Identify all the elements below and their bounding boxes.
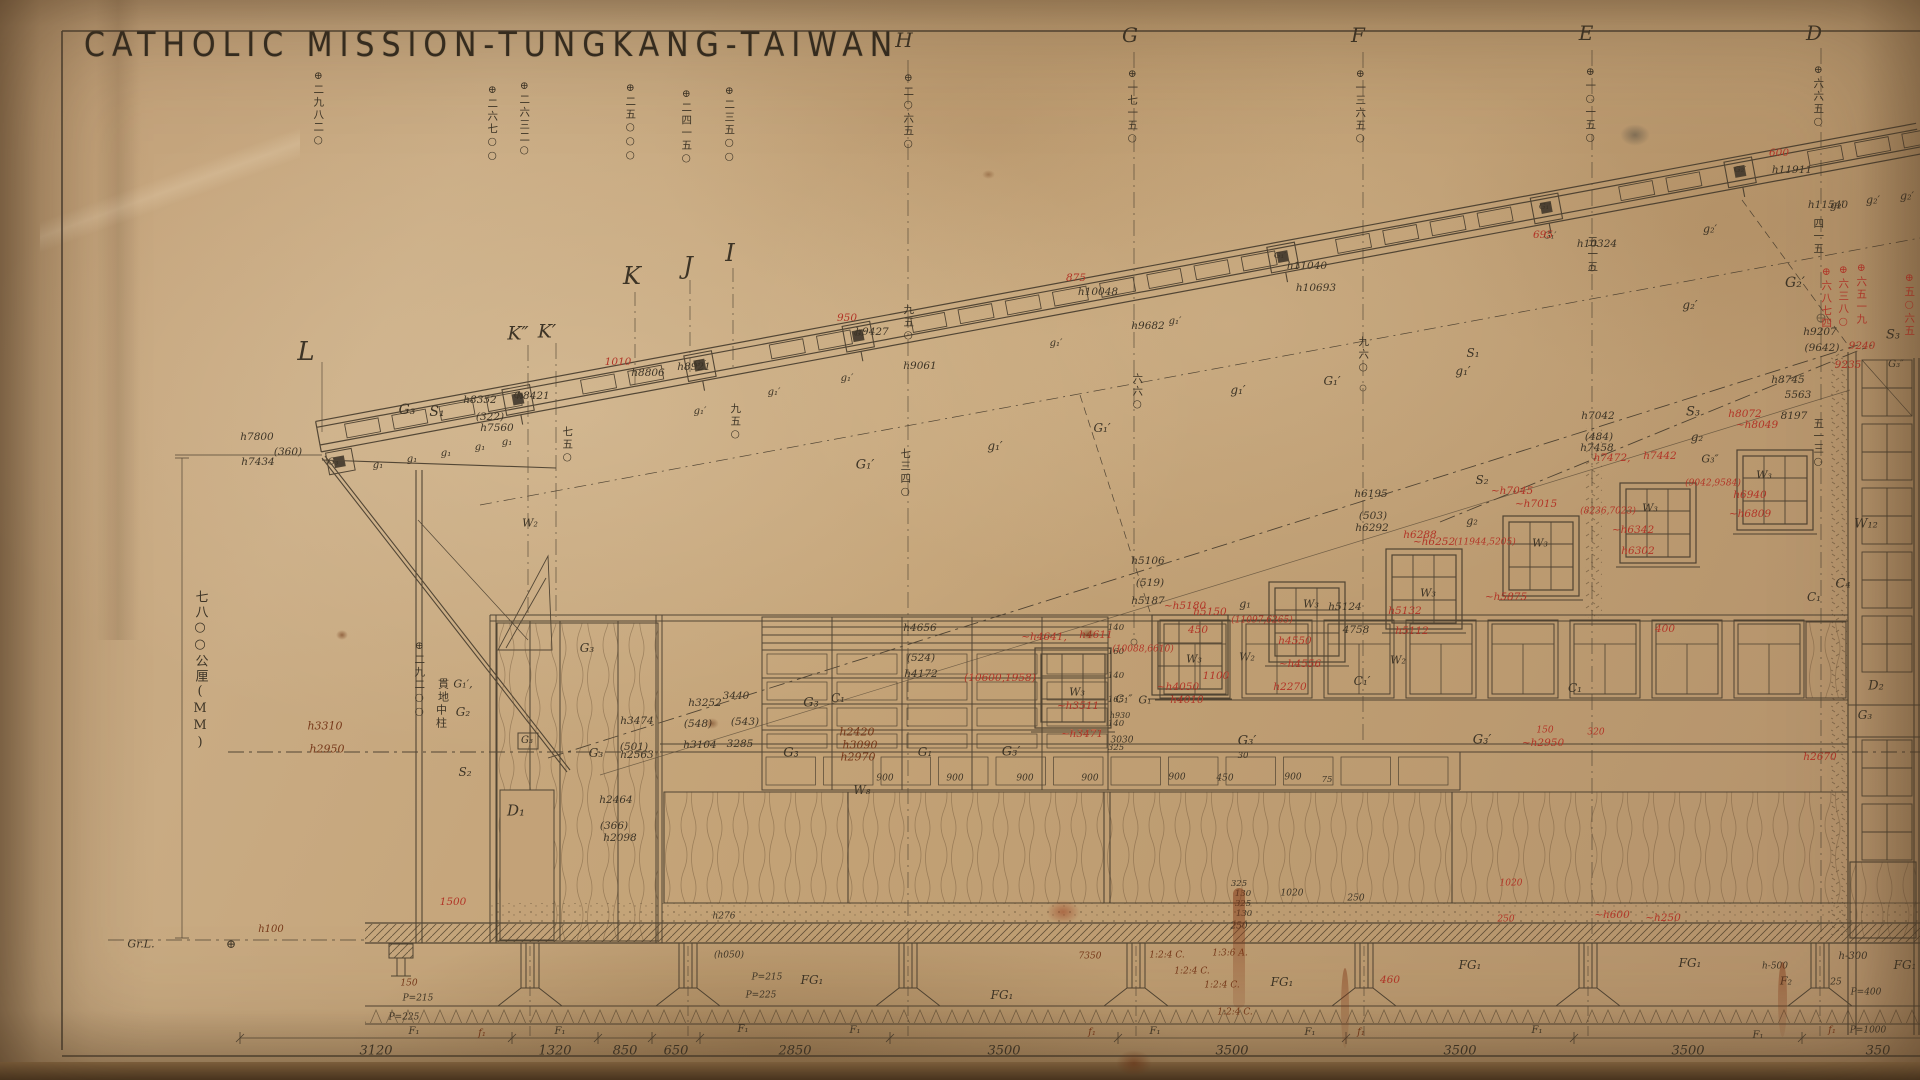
- annotation: 900: [876, 775, 893, 784]
- annotation: h2563: [620, 750, 653, 761]
- annotation: h276: [713, 913, 736, 922]
- annotation: g₁: [407, 455, 417, 465]
- annotation: W₃: [1532, 538, 1548, 549]
- annotation: h100: [258, 925, 284, 935]
- annotation: G: [1122, 25, 1138, 45]
- annotation: 450: [1216, 775, 1233, 784]
- annotation: h11040: [1287, 261, 1327, 272]
- annotation: G₃: [589, 747, 603, 759]
- annotation: G₂′: [1785, 276, 1805, 290]
- wall-band: [490, 615, 1920, 943]
- annotation: h4172: [904, 669, 937, 680]
- annotation: 75: [1322, 776, 1333, 785]
- annotation: 250: [1347, 895, 1364, 904]
- annotation: ~h600: [1594, 910, 1630, 921]
- elevation-column: 五一三○: [1813, 418, 1824, 470]
- annotation: f₁: [1088, 1028, 1096, 1038]
- annotation: 3500: [1443, 1045, 1476, 1058]
- annotation: F₂: [1780, 976, 1792, 987]
- annotation: 140: [1108, 720, 1124, 729]
- annotation: C₁: [831, 692, 845, 704]
- annotation: ~h3471: [1061, 729, 1103, 740]
- annotation: g₁: [373, 461, 383, 471]
- annotation: G₃′: [1238, 735, 1257, 748]
- foundation: [108, 903, 1920, 1044]
- elevation-column: 七八○○公厘(MM): [194, 590, 207, 752]
- annotation: h4656: [903, 623, 936, 634]
- elevation-column: 九五○: [730, 403, 741, 442]
- annotation: 650: [664, 1045, 689, 1058]
- blueprint-sheet: CATHOLIC MISSION-TUNGKANG-TAIWAN: [0, 0, 1920, 1080]
- annotation: 950: [837, 313, 857, 324]
- annotation: G₁′: [1274, 252, 1286, 261]
- annotation: ~h2950: [1522, 738, 1564, 749]
- roof-rafter: [316, 120, 1920, 475]
- annotation: ~h7015: [1515, 499, 1557, 510]
- annotation: G₃″: [1888, 360, 1904, 370]
- annotation: FG₁: [991, 989, 1014, 1001]
- annotation: 150: [1536, 727, 1553, 736]
- annotation: g₁′: [694, 407, 707, 417]
- annotation: 165: [1108, 696, 1124, 705]
- annotation: F₁: [555, 1027, 566, 1037]
- annotation: ~h6342: [1612, 525, 1654, 536]
- annotation: S₁: [1466, 347, 1479, 359]
- annotation: G₃: [399, 403, 416, 417]
- annotation: W₁₂: [1854, 518, 1878, 531]
- annotation: J: [683, 254, 693, 278]
- annotation: 1:2:4 C.: [1174, 968, 1210, 977]
- annotation: ~h250: [1645, 913, 1681, 924]
- annotation: F: [1351, 25, 1365, 45]
- elevation-column: ⊕六三八○: [1838, 264, 1849, 330]
- annotation: 3500: [1215, 1045, 1248, 1058]
- annotation: 1320: [538, 1045, 571, 1058]
- annotation: 9240: [1849, 341, 1876, 352]
- annotation: P=225: [389, 1014, 420, 1023]
- annotation: W₃: [1420, 588, 1436, 599]
- annotation: 325: [1231, 880, 1247, 889]
- annotation: W₈: [853, 784, 870, 796]
- annotation: h-500: [1762, 963, 1788, 972]
- annotation: (h050): [714, 952, 744, 961]
- annotation: g₁′: [1050, 339, 1063, 349]
- annotation: f₁: [1357, 1028, 1365, 1038]
- elevation-column: ⊕二六三二○: [519, 80, 530, 158]
- annotation: L: [297, 339, 314, 365]
- annotation: h7472,: [1594, 453, 1631, 464]
- annotation: H: [895, 30, 912, 50]
- annotation: 3440: [723, 691, 750, 702]
- annotation: ~h4556: [1279, 659, 1321, 670]
- annotation: 2850: [778, 1045, 811, 1058]
- annotation: 1500: [440, 897, 467, 908]
- annotation: G₂′: [1734, 166, 1746, 175]
- elevation-column: 四一五: [1813, 218, 1824, 256]
- annotation: K″: [507, 325, 528, 344]
- annotation: f₁: [1828, 1026, 1836, 1036]
- annotation: h6302: [1621, 546, 1654, 557]
- annotation: S₂: [458, 766, 471, 778]
- annotation: (548): [684, 719, 712, 730]
- annotation: C₁: [1568, 682, 1582, 694]
- section-drawing: [0, 0, 1920, 1080]
- annotation: 25: [1830, 979, 1841, 988]
- annotation: FG₁: [1271, 976, 1294, 988]
- annotation: G₂: [456, 706, 470, 718]
- annotation: I: [725, 241, 734, 265]
- annotation: h4611: [1079, 630, 1112, 641]
- elevation-column: ⊕二五○○○: [625, 82, 636, 163]
- annotation: 1:2:4 C.: [1149, 952, 1185, 961]
- annotation: 5563: [1785, 390, 1812, 401]
- annotation: h8352: [463, 395, 496, 406]
- annotation: h7560: [480, 423, 513, 434]
- annotation: G₁′: [1093, 422, 1110, 434]
- annotation: (10088,6610): [1112, 646, 1173, 655]
- annotation: Gr.L.: [127, 939, 154, 950]
- annotation: h8806: [631, 368, 664, 379]
- annotation: 140: [1108, 672, 1124, 681]
- annotation: h9061: [903, 361, 936, 372]
- annotation: 30: [1238, 752, 1249, 761]
- annotation: (9642): [1805, 343, 1840, 354]
- annotation: h5187: [1131, 596, 1164, 607]
- annotation: G₁′: [1539, 203, 1551, 212]
- annotation: f₁: [478, 1029, 486, 1039]
- annotation: h4010: [1170, 695, 1203, 706]
- annotation: h11911: [1772, 165, 1812, 176]
- elevation-column: ⊕二四一五○: [681, 88, 692, 166]
- annotation: 900: [946, 775, 963, 784]
- annotation: h7800: [240, 432, 273, 443]
- annotation: G₁′: [1323, 375, 1340, 387]
- annotation: 850: [613, 1045, 638, 1058]
- annotation: ⊕: [226, 938, 236, 950]
- annotation: C₄: [1835, 578, 1850, 591]
- annotation: F₁: [1753, 1031, 1764, 1041]
- annotation: W₃: [1642, 503, 1658, 514]
- annotation: 7350: [1079, 953, 1102, 962]
- annotation: G₃″: [1701, 454, 1718, 465]
- annotation: G₃: [328, 459, 339, 468]
- annotation: (322): [476, 412, 504, 423]
- annotation: 695: [1533, 230, 1553, 241]
- annotation: 130: [1236, 910, 1252, 919]
- annotation: h2970: [840, 752, 875, 763]
- annotation: ~h8049: [1736, 420, 1778, 431]
- annotation: FG₁: [801, 974, 824, 986]
- elevation-column: ⊕二九八二○: [313, 70, 324, 148]
- annotation: 875: [1066, 273, 1086, 284]
- annotation: C₁: [1807, 591, 1821, 603]
- annotation: (9042,9584): [1685, 480, 1741, 489]
- annotation: S₃: [1686, 406, 1700, 419]
- annotation: 250: [1230, 923, 1247, 932]
- annotation: (10600,1958): [964, 673, 1036, 684]
- annotation: FG₁: [1894, 959, 1917, 971]
- annotation: (484): [1585, 432, 1613, 443]
- annotation: (524): [907, 653, 935, 664]
- annotation: S₃: [1886, 329, 1900, 342]
- annotation: 1020: [1500, 880, 1523, 889]
- annotation: S₂: [1475, 474, 1488, 486]
- annotation: 900: [1284, 774, 1301, 783]
- annotation: g₁: [441, 449, 451, 459]
- annotation: h4550: [1278, 636, 1311, 647]
- annotation: h5132: [1388, 606, 1421, 617]
- annotation: 9235: [1835, 360, 1862, 371]
- annotation: 450: [1188, 625, 1208, 636]
- annotation: h2464: [599, 795, 632, 806]
- annotation: G₃: [580, 642, 594, 654]
- annotation: 320: [1587, 729, 1604, 738]
- annotation: F₁: [1150, 1027, 1161, 1037]
- annotation: F₁: [738, 1025, 749, 1035]
- annotation: C₁′: [1354, 675, 1371, 687]
- annotation: g₁: [475, 443, 485, 453]
- annotation: W₃: [1069, 687, 1085, 698]
- annotation: 400: [1655, 624, 1675, 635]
- annotation: h6940: [1733, 490, 1766, 501]
- annotation: 250: [1497, 916, 1514, 925]
- annotation: K: [623, 264, 641, 288]
- annotation: g₂′: [1703, 224, 1717, 235]
- annotation: 900: [1081, 775, 1098, 784]
- annotation: g₁′: [841, 374, 854, 384]
- elevation-column: 九六○: [1358, 336, 1369, 375]
- annotation: G₁′: [514, 392, 526, 401]
- annotation: (11944,5205): [1454, 539, 1515, 548]
- annotation: 4758: [1343, 625, 1370, 636]
- elevation-column: ⊕六六五○: [1813, 64, 1824, 130]
- annotation: P=400: [1851, 989, 1882, 998]
- annotation: G₁: [918, 746, 932, 758]
- annotation: h2270: [1273, 682, 1306, 693]
- annotation: h5112: [1395, 626, 1428, 637]
- annotation: g₂: [1466, 516, 1477, 527]
- annotation: h7434: [241, 457, 274, 468]
- annotation: h3252: [688, 698, 721, 709]
- annotation: h2098: [603, 833, 636, 844]
- elevation-column: ⊕二○六五○: [903, 72, 914, 152]
- elevation-column: ⊕五○六五: [1904, 272, 1915, 338]
- annotation: g₂′: [1866, 195, 1880, 206]
- elevation-column: ⊕二九二○○: [414, 640, 425, 720]
- annotation: (366): [600, 821, 628, 832]
- annotation: h8072: [1728, 409, 1761, 420]
- annotation: 1:2:4 C.: [1217, 1009, 1253, 1018]
- annotation: (519): [1136, 578, 1164, 589]
- annotation: F₁: [1532, 1026, 1543, 1036]
- annotation: F₁: [409, 1027, 420, 1037]
- annotation: ~h4641,: [1021, 632, 1067, 643]
- annotation: F₁: [850, 1026, 861, 1036]
- elevation-column: ⊕二六七○○: [487, 84, 498, 164]
- annotation: 325: [1235, 900, 1251, 909]
- annotation: h2420: [839, 727, 874, 738]
- annotation: G₃: [783, 747, 799, 760]
- annotation: 460: [1380, 975, 1400, 986]
- annotation: G₃: [803, 697, 819, 710]
- annotation: 1010: [605, 357, 632, 368]
- annotation: 8197: [1781, 411, 1808, 422]
- annotation: 1100: [1203, 671, 1230, 682]
- annotation: h-300: [1839, 952, 1868, 962]
- elevation-column: 九五○: [903, 304, 914, 343]
- annotation: W₃: [1303, 599, 1319, 610]
- annotation: h6292: [1355, 523, 1388, 534]
- annotation: 3285: [727, 739, 754, 750]
- elevation-column: ⊕二三五○○: [724, 85, 735, 165]
- annotation: g₁′: [987, 440, 1002, 452]
- annotation: (543): [731, 717, 759, 728]
- elevation-column: ⊕一七一五○: [1127, 68, 1138, 146]
- annotation: h2950: [309, 744, 344, 755]
- annotation: g₂′: [1830, 200, 1844, 211]
- annotation: W₂: [1239, 652, 1255, 663]
- annotation: FG₁: [1459, 959, 1482, 971]
- annotation: W₃: [1756, 470, 1772, 481]
- annotation: h2670: [1803, 752, 1836, 763]
- annotation: D₂: [1868, 680, 1884, 693]
- annotation: g₁: [502, 438, 512, 448]
- annotation: G₁: [1138, 695, 1151, 706]
- annotation: 900: [1168, 774, 1185, 783]
- annotation: h10693: [1296, 283, 1336, 294]
- annotation: 1020: [1281, 890, 1304, 899]
- annotation: G₃: [1858, 709, 1872, 721]
- annotation: ~h5875: [1485, 592, 1527, 603]
- annotation: g₁′: [1230, 384, 1245, 396]
- annotation: G₃′: [1473, 734, 1492, 747]
- annotation: 1:3:6 A.: [1212, 950, 1247, 959]
- annotation: G₃′: [1002, 746, 1021, 759]
- elevation-column: 六六○: [1132, 373, 1143, 412]
- annotation: (503): [1359, 511, 1387, 522]
- elevation-column: ⊕六八七四: [1821, 266, 1832, 330]
- annotation: h5124: [1328, 602, 1361, 613]
- annotation: 3500: [987, 1045, 1020, 1058]
- annotation: S₁: [429, 405, 444, 419]
- elevation-column: 七三四○: [900, 448, 911, 500]
- annotation: G₃: [521, 736, 533, 746]
- annotation: (360): [274, 447, 302, 458]
- annotation: ~h4050: [1157, 682, 1199, 693]
- annotation: h7042: [1581, 411, 1614, 422]
- annotation: h3090: [842, 740, 877, 751]
- elevation-column: 七五○: [562, 426, 573, 465]
- annotation: W₂: [1390, 655, 1406, 666]
- annotation: h10048: [1078, 287, 1118, 298]
- annotation: E: [1579, 23, 1594, 43]
- annotation: 350: [1866, 1045, 1891, 1058]
- annotation: g₂: [1691, 431, 1704, 443]
- annotation: g₂′: [1900, 191, 1914, 202]
- elevation-column: ⊕一○一五○: [1585, 66, 1596, 146]
- annotation: ~h7045: [1491, 486, 1533, 497]
- elevation-column: ⊕一三六五○: [1355, 68, 1366, 146]
- annotation: 3500: [1671, 1045, 1704, 1058]
- annotation: 3120: [359, 1045, 392, 1058]
- annotation: W₃: [1186, 654, 1202, 665]
- annotation: 325: [1108, 744, 1124, 753]
- annotation: h5106: [1131, 556, 1164, 567]
- elevation-column: 貫地: [438, 678, 449, 704]
- annotation: h3104: [683, 740, 716, 751]
- annotation: 130: [1235, 890, 1251, 899]
- annotation: D: [1806, 23, 1822, 43]
- annotation: g₁′: [768, 388, 781, 398]
- annotation: h3474: [620, 716, 653, 727]
- annotation: P=1000: [1850, 1027, 1887, 1036]
- annotation: (8236,7023): [1580, 508, 1636, 517]
- elevation-column: 中柱: [436, 704, 447, 730]
- annotation: G₁′: [856, 459, 875, 472]
- annotation: P=215: [752, 974, 783, 983]
- annotation: (11097,6265): [1231, 617, 1292, 626]
- elevation-column: ⊕六五一九: [1856, 262, 1867, 326]
- annotation: G₁′,: [453, 679, 472, 690]
- annotation: g₁: [1239, 599, 1250, 610]
- annotation: h7442: [1643, 451, 1676, 462]
- annotation: g₂′: [1682, 299, 1697, 311]
- annotation: h9682: [1131, 321, 1164, 332]
- annotation: ~h6252: [1413, 537, 1455, 548]
- annotation: P=215: [403, 995, 434, 1004]
- annotation: P=225: [746, 992, 777, 1001]
- annotation: F₁: [1305, 1028, 1316, 1038]
- annotation: 600: [1769, 148, 1789, 159]
- annotation: W₂: [522, 518, 538, 529]
- annotation: 900: [1016, 775, 1033, 784]
- annotation: h6195: [1354, 489, 1387, 500]
- annotation: h8745: [1771, 375, 1804, 386]
- annotation: 150: [400, 980, 417, 989]
- annotation: g₁′: [1169, 317, 1182, 327]
- annotation: h3310: [307, 721, 342, 732]
- annotation: FG₁: [1679, 957, 1702, 969]
- annotation: ~h3511: [1057, 701, 1099, 712]
- annotation: 1:2:4 C.: [1204, 982, 1240, 991]
- annotation: ~h6809: [1729, 509, 1771, 520]
- annotation: g₁′: [1455, 365, 1470, 377]
- elevation-column: 五一五: [1587, 236, 1598, 274]
- annotation: h5150: [1193, 607, 1226, 618]
- annotation: D₁: [507, 804, 525, 819]
- annotation: G₁′: [854, 330, 866, 339]
- annotation: G₁′: [694, 360, 706, 369]
- annotation: K′: [538, 323, 557, 342]
